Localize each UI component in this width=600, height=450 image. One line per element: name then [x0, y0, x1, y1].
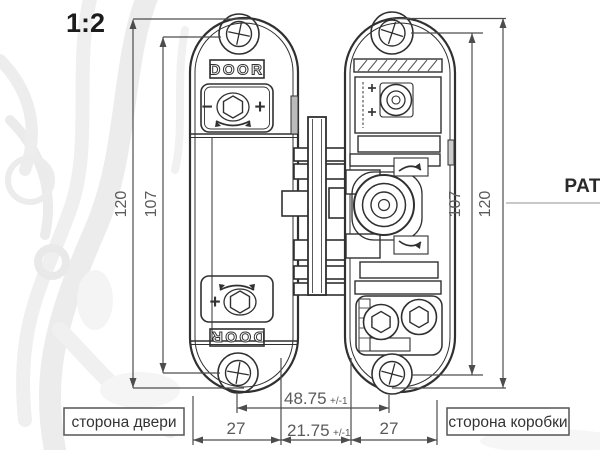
dim-right-outer-text: 120 — [477, 191, 494, 218]
dim-bottom-left-text: 27 — [227, 419, 246, 438]
dim-screw-spacing-text: 48.75 — [284, 389, 327, 408]
door-marking-bottom: DOOR — [210, 328, 265, 346]
scale-label: 1:2 — [66, 8, 105, 38]
rotation-arrow-icon — [394, 158, 428, 176]
dim-left-outer-text: 120 — [113, 191, 130, 218]
frame-side-label: сторона коробки — [448, 414, 567, 431]
plus-adjust-icon: + — [254, 97, 265, 118]
dim-bottom-right-text: 27 — [380, 419, 399, 438]
door-side-label-box: сторона двери — [64, 408, 184, 435]
dim-screw-spacing-tolerance: +/-1 — [330, 396, 348, 407]
edge-notch — [291, 96, 298, 134]
dim-bottom-middle-tolerance: +/-1 — [333, 428, 351, 439]
door-side-label: сторона двери — [71, 414, 176, 431]
minus-adjust-icon: − — [201, 97, 212, 118]
frame-side-label-box: сторона коробки — [447, 408, 569, 435]
dim-left-inner-text: 107 — [143, 191, 160, 218]
door-marking-bottom-text: DOOR — [210, 328, 265, 345]
rotation-arrow-icon — [394, 236, 428, 254]
plus-adjust-icon: + — [209, 292, 220, 313]
hinge-technical-drawing-page: 1:2 DOOR − — [0, 0, 600, 450]
door-marking-top-text: DOOR — [210, 62, 265, 79]
patent-label: PAT — [564, 176, 600, 197]
hinge-drawing-canvas: 1:2 DOOR − — [0, 0, 600, 450]
edge-notch — [448, 140, 454, 165]
dim-right-inner-text: 107 — [447, 191, 464, 218]
right-hinge-body — [345, 12, 455, 394]
door-marking-top: DOOR — [210, 60, 265, 79]
hex-bolt-icon — [402, 300, 437, 335]
hex-bolt-icon — [364, 305, 399, 340]
dim-bottom-middle-text: 21.75 — [287, 421, 330, 440]
